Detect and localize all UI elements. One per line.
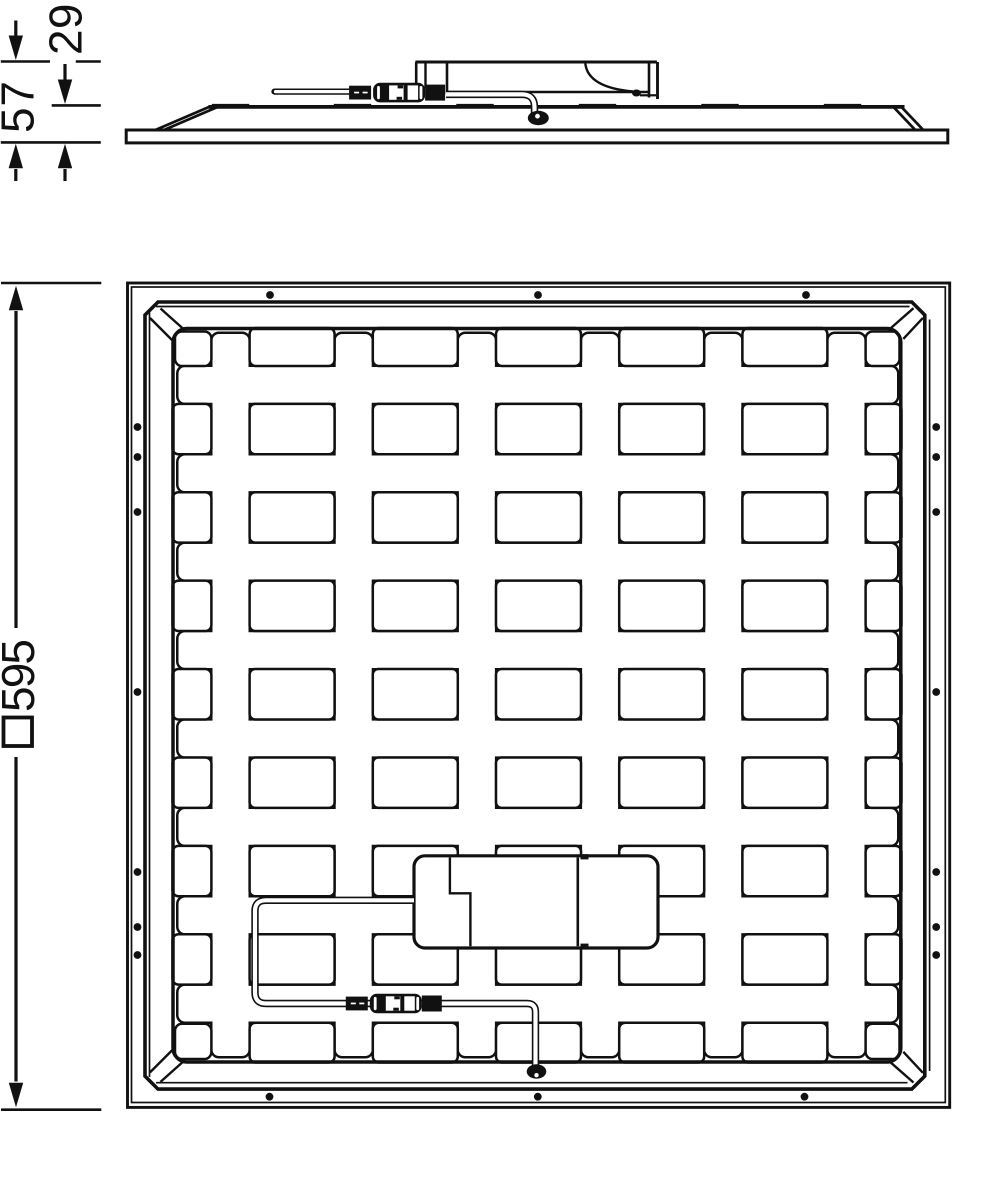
svg-text:595: 595 bbox=[0, 639, 44, 712]
svg-text:57: 57 bbox=[0, 81, 44, 133]
svg-text:29: 29 bbox=[40, 4, 92, 56]
